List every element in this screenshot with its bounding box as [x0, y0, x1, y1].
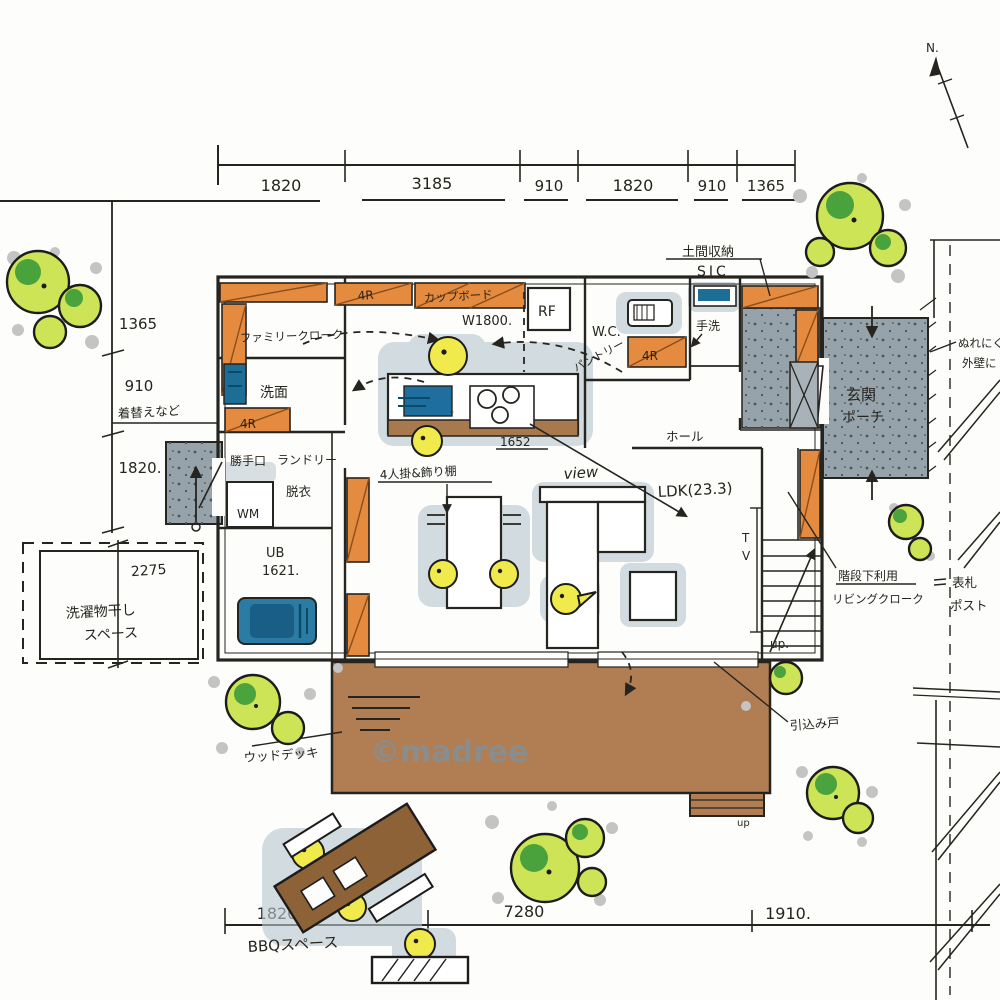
floor-plan-canvas: 1820 3185 910 1820 910 1365 1365 910 182…	[0, 0, 1000, 1000]
north-arrow	[930, 58, 968, 148]
dim-top-1: 1820	[261, 176, 302, 195]
kitchen-island	[388, 374, 578, 436]
label-bath: UB	[266, 546, 284, 561]
ottoman	[630, 572, 676, 620]
label-cupboard-width: W1800.	[462, 314, 512, 329]
label-family-closet: ファミリークローク	[240, 327, 344, 345]
label-wc: W.C.	[592, 325, 621, 340]
label-undressing: 脱衣	[286, 484, 312, 499]
label-wm: WM	[237, 507, 259, 521]
dim-top-4: 1820	[613, 176, 654, 195]
kitchen-sink	[404, 386, 452, 416]
label-changing: 着替えなど	[117, 403, 181, 421]
dim-left-3: 1820.	[119, 459, 162, 477]
label-counter-note: 1652	[500, 435, 531, 449]
dim-top-3: 910	[535, 177, 564, 195]
watermark: ©madree	[370, 735, 528, 770]
washbasin	[224, 364, 246, 404]
label-hall: ホール	[666, 429, 704, 444]
label-tearai: 手洗	[696, 319, 720, 333]
dim-left-lower: 2275	[130, 562, 167, 580]
label-tv-2: V	[742, 549, 751, 563]
label-wet-note-1: ぬれにく	[958, 336, 1000, 350]
label-view: view	[563, 463, 599, 483]
label-up-deck: up	[737, 818, 750, 829]
label-laundry: ランドリー	[277, 453, 337, 467]
floor-plan-sketch: 1820 3185 910 1820 910 1365 1365 910 182…	[0, 0, 1000, 1000]
label-tv-1: T	[741, 531, 750, 545]
label-genkan-2: ポーチ	[842, 410, 884, 426]
planter	[372, 957, 468, 983]
label-genkan-1: 玄関	[846, 386, 876, 404]
label-deck: ウッドデッキ	[243, 745, 319, 765]
north-label: N.	[926, 41, 939, 55]
dim-bottom-2: 7280	[504, 902, 545, 921]
label-closet-wash: 4R	[240, 417, 256, 431]
label-stair-note-2: リビングクローク	[832, 592, 924, 606]
dim-bottom-3: 1910.	[765, 904, 811, 923]
label-bbq: BBQスペース	[247, 933, 338, 956]
label-up-stairs: up.	[770, 637, 789, 651]
drying-space-label-1: 洗濯物干し	[65, 602, 136, 622]
label-closet-top: 4R	[357, 288, 374, 303]
dim-left-1: 1365	[119, 315, 157, 333]
label-wet-note-2: 外壁に	[962, 356, 997, 370]
label-backdoor: 勝手口	[230, 453, 266, 468]
drying-space-label-2: スペース	[83, 625, 138, 644]
dim-top-5: 910	[698, 177, 727, 195]
label-rf: RF	[538, 304, 556, 320]
label-stair-note-1: 階段下利用	[838, 568, 898, 583]
label-dining-note: 4人掛&飾り棚	[379, 463, 457, 482]
label-closet-wc: 4R	[642, 349, 658, 363]
dim-left-2: 910	[125, 377, 154, 395]
dim-top-2: 3185	[412, 174, 453, 193]
tv-board	[750, 508, 762, 632]
label-sic: SIC	[697, 264, 729, 280]
label-washroom: 洗面	[260, 385, 288, 401]
label-nameplate: 表札	[952, 575, 977, 590]
label-ldk: LDK(23.3)	[657, 479, 733, 501]
label-doma-storage: 土間収納	[682, 245, 734, 260]
label-bath-size: 1621.	[262, 564, 299, 579]
label-post: ポスト	[950, 598, 988, 613]
dim-top-6: 1365	[747, 177, 785, 195]
label-sliding-door: 引込み戸	[789, 715, 840, 733]
